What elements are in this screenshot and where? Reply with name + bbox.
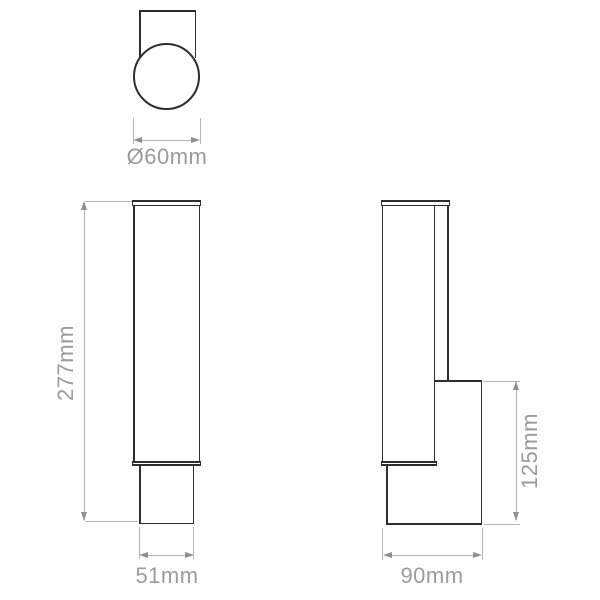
width-dimension-label: 51mm [117,563,217,589]
height-extension-bottom [85,521,138,522]
height-dimension-line [84,203,85,520]
top-diffuser-circle [133,43,200,110]
side-bottom-edge [386,523,482,525]
side-bracket-back-edge [481,382,483,525]
bracket-height-arrow-bottom-icon [513,512,519,521]
bracket-height-arrow-top-icon [513,381,519,390]
side-rim-top-edge [381,461,437,463]
front-body-right-edge [199,206,201,461]
side-body-front-edge [382,206,384,461]
side-body-back-edge [447,206,449,381]
depth-extension-right [482,528,483,560]
width-arrow-left-icon [139,552,148,558]
side-body-inner-edge [434,206,436,461]
width-arrow-right-icon [185,552,194,558]
top-tube-left-edge [139,10,141,58]
side-cap-bottom-edge [381,205,450,207]
front-cap-bottom-edge [132,205,201,207]
depth-dimension-label: 90mm [382,563,482,589]
front-lamp-tube-bottom-edge [139,523,194,525]
front-rim-bottom-edge [132,464,201,467]
diameter-dimension-line [137,140,197,141]
front-body-left-edge [133,206,135,461]
front-lamp-tube-left-edge [139,466,141,524]
front-lamp-tube-right-edge [193,466,195,524]
bracket-height-dimension-label: 125mm [517,401,543,501]
height-arrow-bottom-icon [81,512,87,521]
diameter-dimension-label: Ø60mm [107,144,227,170]
depth-arrow-right-icon [473,552,482,558]
side-cap-top-edge [381,200,450,202]
front-cap-top-edge [132,200,201,202]
height-extension-top [85,201,132,202]
technical-drawing-canvas: Ø60mm 277mm 51mm [0,0,600,600]
height-arrow-top-icon [81,201,87,210]
depth-dimension-line [386,555,479,556]
side-lower-front-edge [386,466,388,525]
diameter-arrow-left-icon [133,137,142,143]
front-rim-top-edge [132,461,201,463]
height-dimension-label: 277mm [53,313,79,413]
side-bracket-top-edge [434,380,482,382]
top-tube-right-edge [195,10,197,58]
bracket-height-extension-bottom [484,524,520,525]
depth-arrow-left-icon [383,552,392,558]
top-tube-top-edge [139,10,196,12]
side-rim-bottom-edge [381,464,437,467]
diameter-arrow-right-icon [191,137,200,143]
